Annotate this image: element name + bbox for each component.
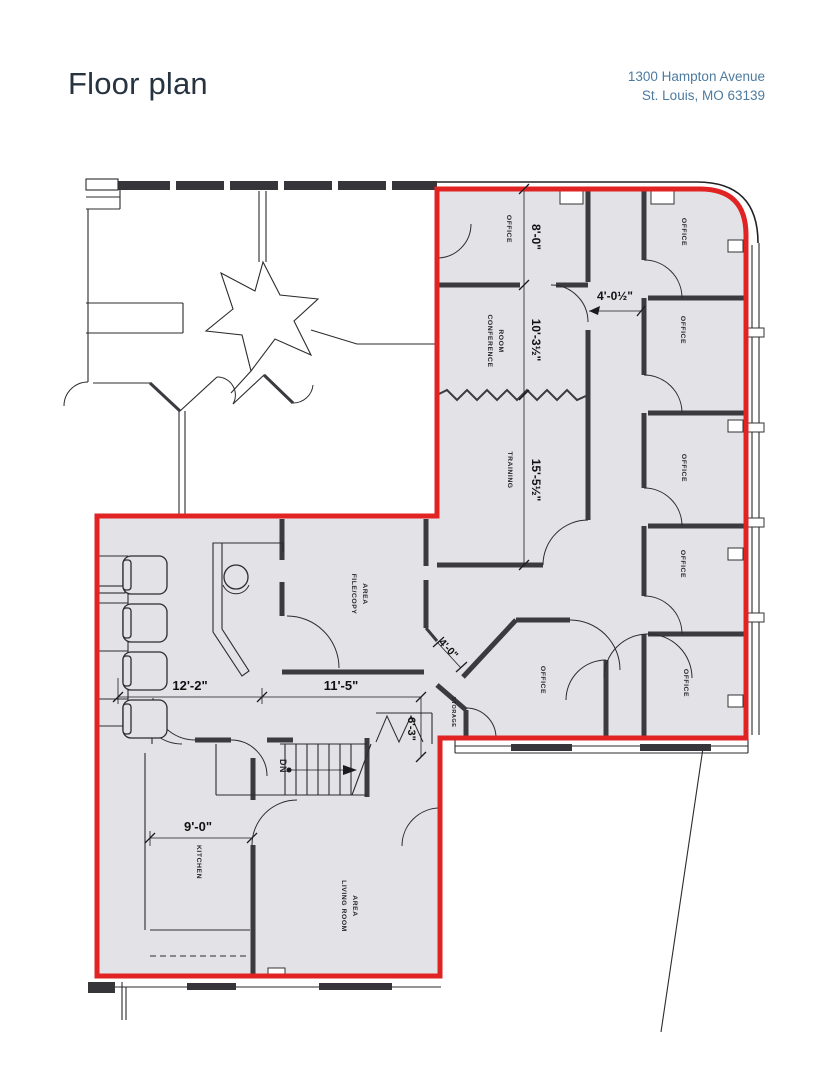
room-label-living-1: LIVING ROOM <box>340 880 347 932</box>
dim-kitchen: 9'-0" <box>184 819 212 834</box>
dim-training: 15'-5½" <box>529 459 543 502</box>
room-label-training: TRAINING <box>506 451 513 488</box>
dim-office-top: 8'-0" <box>529 224 543 250</box>
room-label-office-5: OFFICE <box>679 550 686 578</box>
top-window-wall <box>86 179 437 209</box>
room-label-living-2: AREA <box>351 895 358 916</box>
floor-plan-page: Floor plan 1300 Hampton Avenue St. Louis… <box>0 0 835 1080</box>
room-label-kitchen: KITCHEN <box>195 845 202 879</box>
room-label-conference-1: CONFERENCE <box>486 314 493 367</box>
room-label-office-6: OFFICE <box>682 669 689 697</box>
room-label-storage: STORAGE <box>450 697 456 728</box>
stairs-down-label: DN <box>278 759 288 773</box>
dim-closet: 6'-3" <box>405 717 417 741</box>
room-label-office-4: OFFICE <box>680 454 687 482</box>
leased-area-floor <box>97 189 746 976</box>
floor-plan-drawing: 8'-0" 10'-3½" 15'-5½" 4'-0½" 4'-0" 12'-2… <box>0 0 835 1080</box>
room-label-office-3: OFFICE <box>679 316 686 344</box>
dim-entry: 4'-0½" <box>597 289 633 303</box>
room-label-conference-2: ROOM <box>497 329 504 352</box>
room-label-filecopy-1: FILE/COPY <box>350 574 357 615</box>
room-label-filecopy-2: AREA <box>361 583 368 604</box>
room-label-office-1: OFFICE <box>505 215 512 243</box>
dim-filecopy: 11'-5" <box>324 678 359 693</box>
room-label-office-2: OFFICE <box>680 218 687 246</box>
room-label-office-7: OFFICE <box>539 666 546 694</box>
dim-conference: 10'-3½" <box>529 319 543 362</box>
common-area-walls <box>64 191 437 514</box>
dim-reception: 12'-2" <box>172 678 207 693</box>
